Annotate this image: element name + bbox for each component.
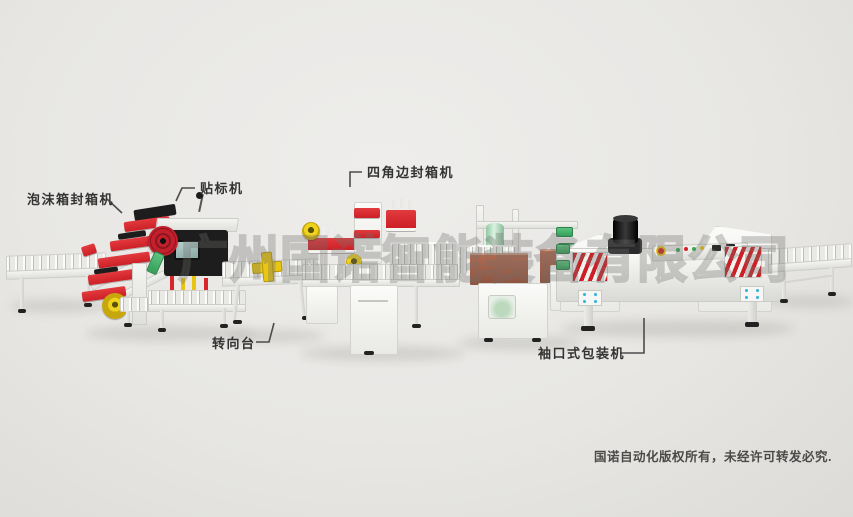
top-pin (330, 228, 333, 237)
machine-leg (748, 302, 757, 324)
cross-brace (784, 275, 832, 284)
cross-v (261, 251, 275, 282)
machine-foot (484, 338, 493, 342)
label-sleeve-wrapper: 袖口式包装机 (538, 346, 625, 362)
panel-switch (712, 245, 721, 251)
copyright-text: 国诺自动化版权所有，未经许可转发必究. (594, 446, 832, 465)
main-cabinet (350, 285, 398, 355)
right-red-unit (386, 210, 416, 231)
conveyor-leg (782, 272, 786, 300)
emergency-stop-button (658, 248, 664, 254)
conveyor-leg (830, 267, 834, 293)
panel-light-red (684, 247, 688, 251)
foot-plate (578, 290, 602, 306)
top-pin (322, 226, 325, 235)
left-cabinet (306, 286, 338, 324)
column-red-cap (354, 208, 380, 218)
support-column (132, 263, 147, 325)
cabinet-window (488, 295, 516, 319)
label-four-corner-sealer: 四角边封箱机 (367, 165, 454, 181)
top-pin (400, 198, 403, 208)
applicator-arm (146, 251, 165, 276)
panel-light-green (676, 248, 680, 252)
foot-plate (740, 286, 764, 302)
conveyor-leg (232, 284, 240, 320)
label-foam-box-sealer: 泡沫箱封箱机 (27, 192, 114, 208)
film-clamp (556, 244, 570, 254)
tape-reel (302, 222, 320, 240)
box-on-conveyor (470, 253, 528, 285)
machine-leg (160, 310, 164, 330)
panel-light-green (692, 247, 696, 251)
label-turntable: 转向台 (212, 336, 256, 352)
film-clamp (556, 260, 570, 270)
control-screen (174, 240, 200, 260)
red-flag (81, 243, 97, 257)
top-pin (392, 200, 395, 209)
machine-leg (584, 304, 593, 328)
tunnel-entry-curtain (572, 252, 608, 282)
machine-foot (581, 326, 595, 331)
cabinet-slot (358, 300, 388, 302)
machine-foot (364, 351, 374, 355)
exit-conveyor (768, 240, 853, 306)
panel-light-yellow (700, 246, 704, 250)
conveyor-foot (828, 292, 836, 296)
column-red-band (354, 230, 380, 238)
tunnel-exit-curtain (724, 246, 762, 278)
conveyor-foot (233, 320, 242, 324)
machine-foot (412, 324, 421, 328)
label-reel (148, 226, 178, 256)
four-corner-sealer-machine (302, 200, 458, 356)
shrink-tunnel-machine (556, 218, 782, 330)
top-pin (408, 200, 411, 209)
turn-cross (251, 251, 281, 281)
machine-foot (745, 322, 759, 327)
machine-foot (532, 338, 541, 342)
machine-leg (414, 286, 418, 326)
conveyor-foot (780, 299, 788, 303)
label-labeling-machine: 贴标机 (200, 181, 244, 197)
machine-foot (158, 328, 166, 332)
machine-foot (124, 323, 132, 327)
packing-line-render-scene: 广州国诺智能装备有限公司 泡沫箱封箱机 贴标机 四角边封箱机 转向台 袖口式包装… (0, 0, 853, 517)
conveyor-foot (18, 309, 26, 313)
conveyor-leg (20, 277, 24, 310)
chimney-cap (613, 215, 638, 222)
